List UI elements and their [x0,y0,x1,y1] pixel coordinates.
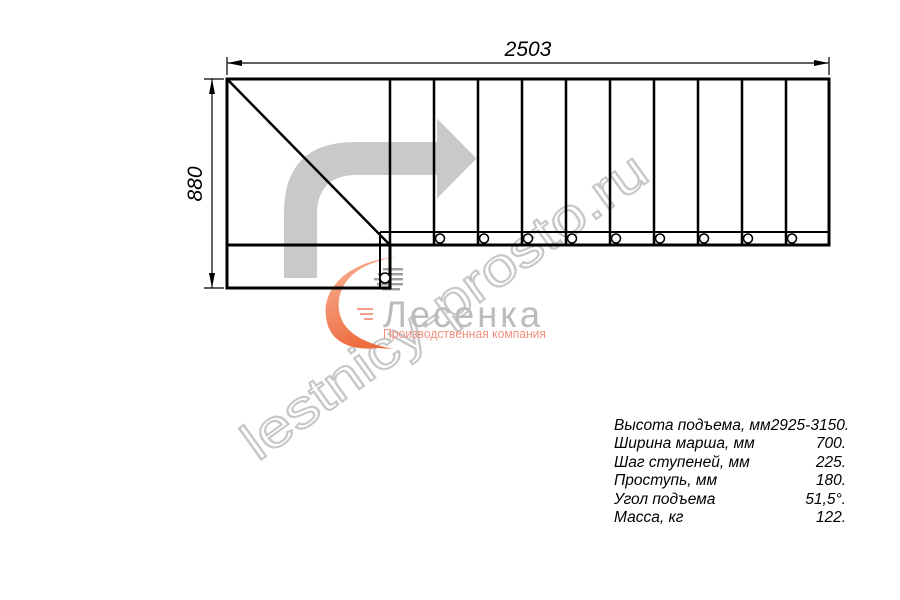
spec-value: 700. [816,435,846,453]
spec-label: Масса, кг [614,509,683,527]
stringer-hole [788,234,797,243]
spec-value: 122. [816,509,846,527]
spec-label: Ширина марша, мм [614,435,755,453]
spec-value: 2925-3150. [771,417,849,435]
dim-width-label: 2503 [504,38,552,61]
spec-row: Ширина марша, мм 700. [614,435,846,453]
spec-label: Проступь, мм [614,472,717,490]
spec-label: Высота подъема, мм [614,417,771,435]
spec-row: Шаг ступеней, мм 225. [614,454,846,472]
lower-stringer-hole [380,273,390,283]
spec-row: Масса, кг 122. [614,509,846,527]
logo-motion-lines [357,308,373,320]
logo-tagline: Производственная компания [383,327,546,341]
spec-label: Угол подъема [614,491,715,509]
stringer-hole [568,234,577,243]
spec-value: 180. [816,472,846,490]
dim-height-label: 880 [184,166,207,201]
stringer-hole [656,234,665,243]
stringer-hole [436,234,445,243]
spec-label: Шаг ступеней, мм [614,454,750,472]
spec-row: Высота подъема, мм 2925-3150. [614,417,846,435]
stringer-hole [524,234,533,243]
spec-row: Угол подъема 51,5°. [614,491,846,509]
stringer-hole [480,234,489,243]
spec-row: Проступь, мм 180. [614,472,846,490]
stringer-hole [612,234,621,243]
stringer-hole [700,234,709,243]
spec-value: 225. [816,454,846,472]
spec-table: Высота подъема, мм 2925-3150. Ширина мар… [614,417,846,527]
spec-value: 51,5°. [805,491,846,509]
stringer-hole [744,234,753,243]
